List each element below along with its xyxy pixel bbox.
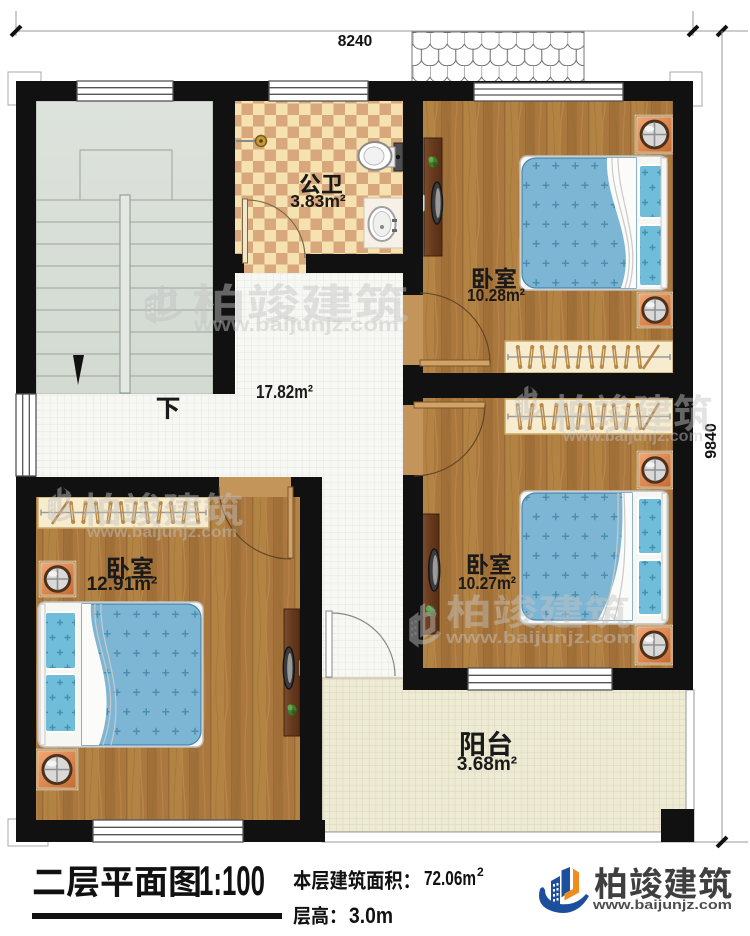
svg-text:17.82m²: 17.82m² xyxy=(256,381,313,402)
svg-text:www.baijunjz.com: www.baijunjz.com xyxy=(592,898,732,912)
svg-text:72.06m: 72.06m xyxy=(424,868,476,890)
svg-text:3.68m²: 3.68m² xyxy=(457,754,517,775)
svg-text:www.baijunjz.com: www.baijunjz.com xyxy=(193,315,399,336)
svg-text:10.27m²: 10.27m² xyxy=(458,573,516,593)
svg-text:3.0m: 3.0m xyxy=(349,903,393,928)
svg-text:8240: 8240 xyxy=(338,33,372,50)
svg-text:3.83m²: 3.83m² xyxy=(290,191,346,211)
svg-text:www.baijunjz.com: www.baijunjz.com xyxy=(445,628,636,647)
svg-text:10.28m²: 10.28m² xyxy=(467,285,525,305)
svg-text:www.baijunjz.com: www.baijunjz.com xyxy=(562,428,703,445)
svg-text:www.baijunjz.com: www.baijunjz.com xyxy=(86,524,237,541)
svg-text:12.91m²: 12.91m² xyxy=(87,574,158,595)
svg-text:1:100: 1:100 xyxy=(199,857,265,904)
svg-text:2: 2 xyxy=(477,865,484,879)
